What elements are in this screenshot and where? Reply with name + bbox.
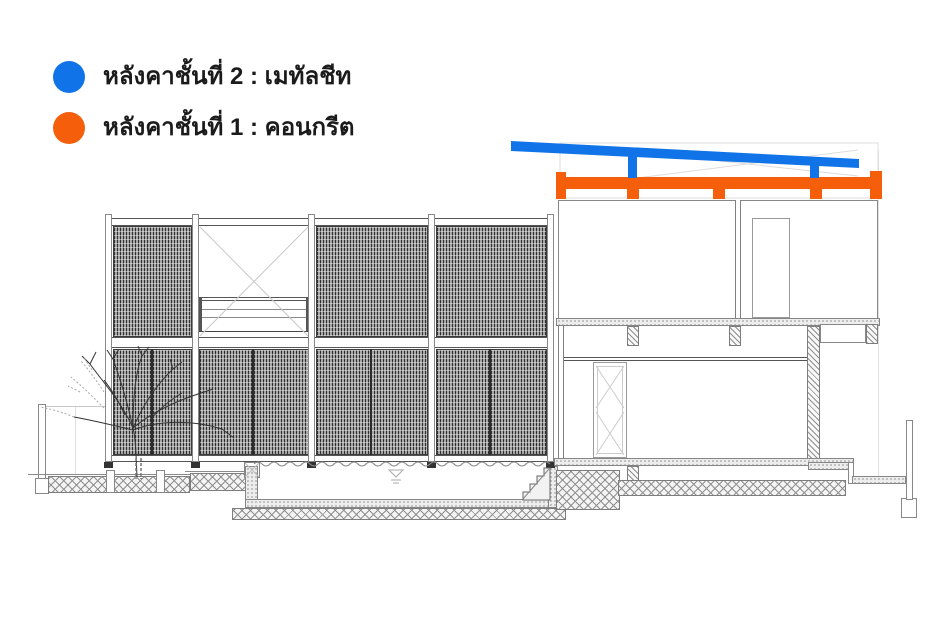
legend-item-roof2: หลังคาชั้นที่ 2 : เมทัลชีท bbox=[52, 60, 355, 94]
slat-mullion-4 bbox=[489, 349, 491, 455]
ground-floor-right-wall bbox=[807, 326, 820, 462]
slat-mullion-3 bbox=[370, 349, 372, 455]
second-floor-divider-wall bbox=[735, 200, 741, 318]
legend: หลังคาชั้นที่ 2 : เมทัลชีท หลังคาชั้นที่… bbox=[52, 60, 355, 145]
column-foot-1 bbox=[104, 462, 113, 468]
slat-panel-bottom-4 bbox=[436, 349, 547, 455]
second-floor-door bbox=[752, 218, 790, 318]
ground-floor-left-wall bbox=[558, 326, 564, 460]
balcony-opening bbox=[199, 226, 309, 337]
railing-top-rail bbox=[199, 297, 309, 301]
pool-floor bbox=[245, 499, 557, 508]
deck-hatch bbox=[190, 473, 252, 491]
ground-floor-louver-door bbox=[593, 362, 627, 458]
railing-mid-rail-2 bbox=[201, 317, 307, 318]
right-ground-hatch-block bbox=[556, 470, 620, 510]
facade-column-3 bbox=[308, 214, 315, 462]
legend-label-roof1: หลังคาชั้นที่ 1 : คอนกรีต bbox=[103, 116, 355, 140]
second-floor-room bbox=[558, 200, 878, 319]
left-gridline bbox=[75, 407, 76, 475]
roof1-swatch-dot-icon bbox=[53, 112, 85, 144]
slat-panel-bottom-3 bbox=[316, 349, 428, 455]
facade-column-5 bbox=[547, 214, 554, 462]
right-gridline bbox=[878, 150, 879, 480]
legend-item-roof1: หลังคาชั้นที่ 1 : คอนกรีต bbox=[52, 111, 355, 145]
section-drawing-page: หลังคาชั้นที่ 2 : เมทัลชีท หลังคาชั้นที่… bbox=[0, 0, 950, 634]
right-ground-hatch-strip bbox=[618, 480, 846, 496]
pool-water-line bbox=[254, 462, 550, 466]
facade-bottom-beam bbox=[105, 455, 554, 462]
facade-column-2 bbox=[192, 214, 199, 462]
ground-floor-ceiling-beam bbox=[564, 357, 808, 361]
left-fence-post bbox=[38, 404, 46, 480]
slat-panel-top-1 bbox=[113, 226, 192, 337]
slat-mullion-2 bbox=[252, 349, 254, 455]
facade-column-1 bbox=[105, 214, 112, 462]
left-fence-footing bbox=[35, 478, 49, 494]
footing-post-b bbox=[156, 470, 165, 493]
slab-beam-stub-3 bbox=[866, 324, 878, 344]
roof-zone-outline bbox=[560, 143, 878, 198]
legend-label-roof2: หลังคาชั้นที่ 2 : เมทัลชีท bbox=[103, 65, 351, 89]
left-site-line bbox=[46, 406, 106, 407]
facade-column-4 bbox=[428, 214, 435, 462]
facade-top-beam bbox=[105, 218, 554, 226]
facade-mid-band bbox=[105, 337, 554, 348]
slat-panel-top-4 bbox=[436, 226, 547, 337]
column-foot-2 bbox=[191, 462, 200, 468]
right-fence-post bbox=[906, 420, 913, 500]
slab-beam-box bbox=[820, 324, 866, 343]
deck-edge-line bbox=[185, 471, 251, 472]
column-foot-4 bbox=[427, 462, 436, 468]
water-level-icon bbox=[389, 470, 403, 483]
pool-underground-hatch bbox=[232, 508, 566, 520]
roof1-concrete-beam bbox=[556, 171, 882, 199]
terrace-slab-lower bbox=[852, 476, 906, 484]
slab-beam-stub-1 bbox=[627, 326, 639, 346]
roof2-metal-sheet-beam bbox=[511, 141, 859, 178]
footing-post-a bbox=[106, 470, 115, 493]
left-ground-hatch bbox=[48, 476, 190, 493]
pool-steps bbox=[523, 468, 550, 500]
slat-panel-bottom-2 bbox=[199, 349, 309, 455]
roof1-swatch bbox=[52, 111, 86, 145]
slab-beam-stub-2 bbox=[729, 326, 741, 346]
roof2-swatch-dot-icon bbox=[53, 61, 85, 93]
railing-mid-rail-1 bbox=[201, 309, 307, 310]
slat-mullion-1 bbox=[151, 349, 153, 455]
column-foot-3 bbox=[307, 462, 316, 468]
right-fence-footing bbox=[901, 498, 917, 518]
slat-panel-top-3 bbox=[316, 226, 428, 337]
roof2-swatch bbox=[52, 60, 86, 94]
